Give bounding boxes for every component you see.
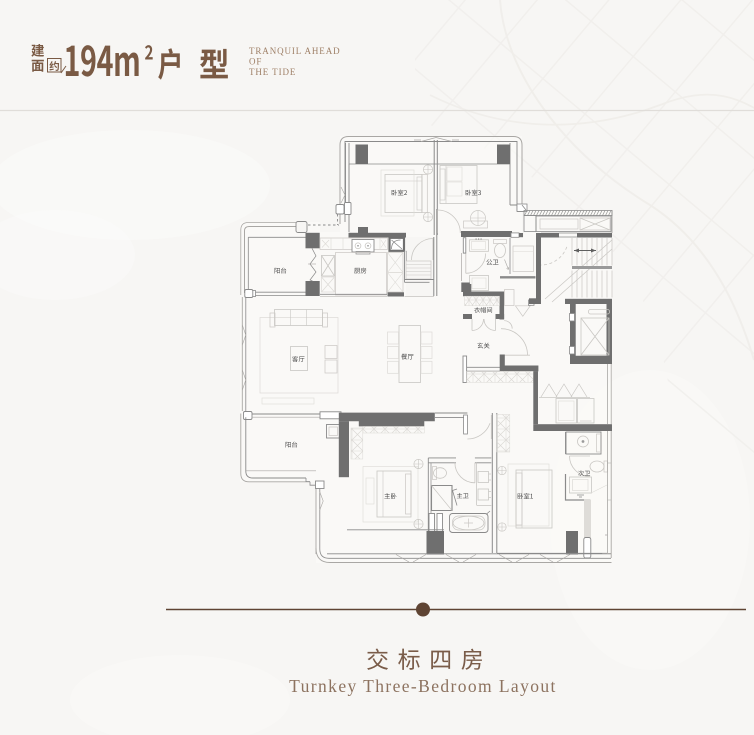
svg-text:TRANQUIL AHEAD: TRANQUIL AHEAD [249, 46, 341, 56]
svg-text:OF: OF [249, 57, 262, 67]
svg-text:Turnkey Three-Bedroom Layout: Turnkey Three-Bedroom Layout [289, 676, 557, 696]
svg-text:THE TIDE: THE TIDE [249, 67, 296, 77]
